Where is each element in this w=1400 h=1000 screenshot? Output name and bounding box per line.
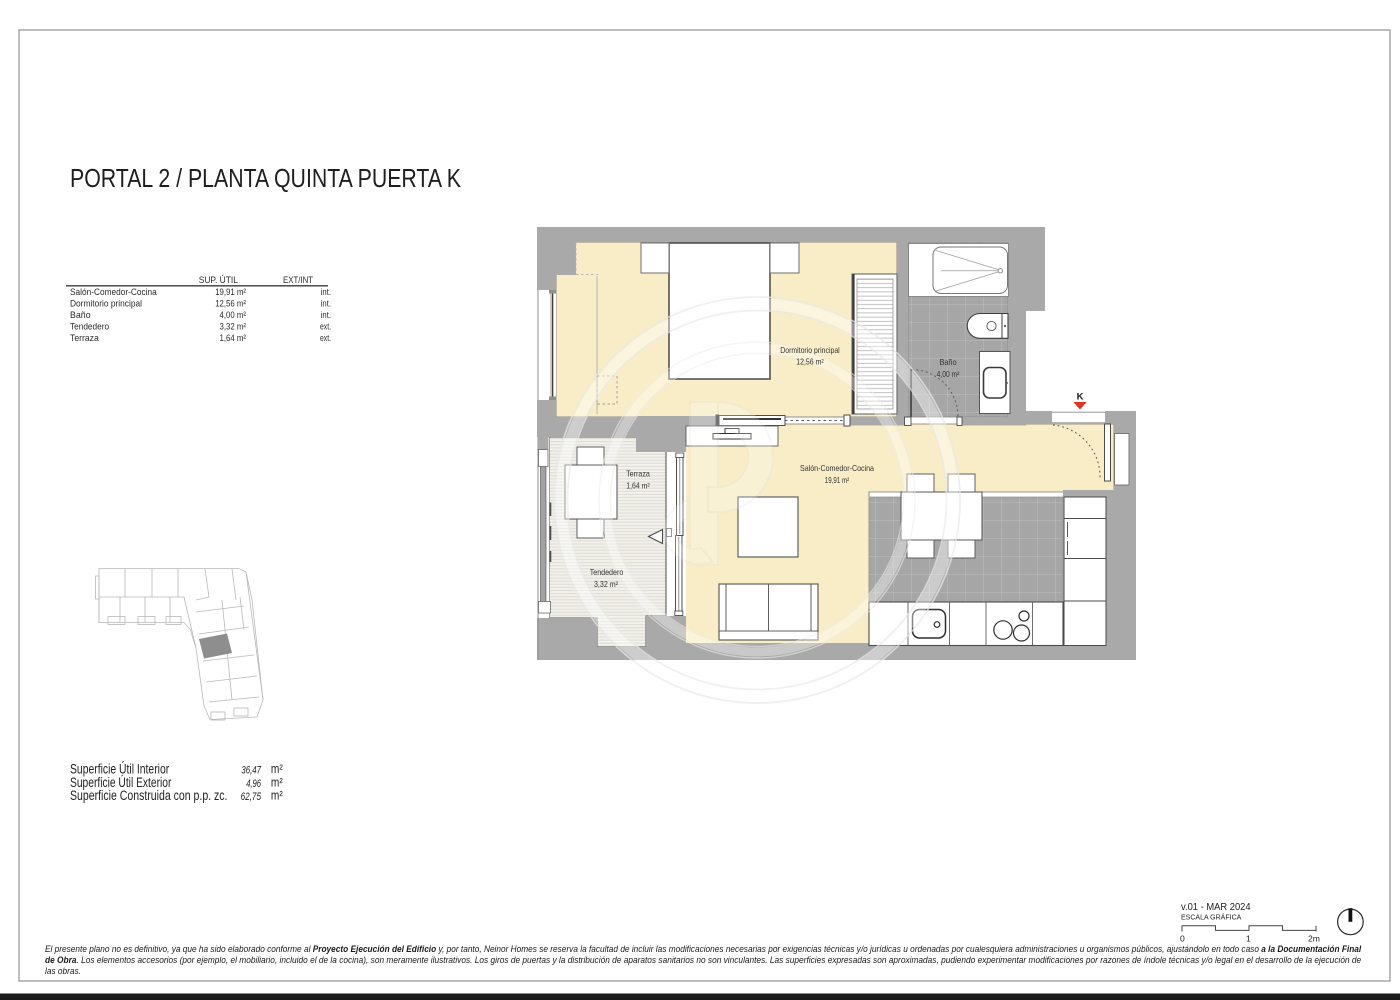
svg-text:Baño: Baño: [939, 358, 956, 367]
svg-text:12,56 m²: 12,56 m²: [215, 299, 246, 310]
svg-text:Baño: Baño: [70, 310, 91, 321]
svg-text:19,91 m²: 19,91 m²: [215, 287, 246, 298]
svg-text:ext.: ext.: [320, 322, 331, 333]
svg-text:m²: m²: [271, 775, 283, 789]
svg-text:62,75: 62,75: [241, 791, 262, 803]
svg-text:0: 0: [1180, 934, 1185, 944]
svg-text:1,64 m²: 1,64 m²: [626, 482, 650, 491]
svg-text:int.: int.: [321, 287, 331, 298]
svg-text:4,00 m²: 4,00 m²: [937, 370, 960, 379]
svg-text:Tendedero: Tendedero: [590, 568, 624, 577]
svg-text:Tendedero: Tendedero: [70, 322, 109, 333]
svg-text:36,47: 36,47: [241, 765, 261, 777]
svg-text:3,32 m²: 3,32 m²: [594, 580, 618, 589]
svg-text:m²: m²: [271, 789, 283, 803]
svg-text:ext.: ext.: [320, 333, 331, 344]
svg-text:m²: m²: [271, 762, 283, 776]
svg-text:K: K: [1077, 392, 1084, 403]
svg-text:4,96: 4,96: [246, 778, 261, 790]
svg-text:4,00 m²: 4,00 m²: [220, 310, 247, 321]
svg-text:3,32 m²: 3,32 m²: [220, 322, 247, 333]
svg-text:Terraza: Terraza: [70, 333, 99, 344]
svg-text:ESCALA GRÁFICA: ESCALA GRÁFICA: [1181, 912, 1242, 921]
svg-text:Dormitorio principal: Dormitorio principal: [780, 346, 840, 355]
svg-text:Terraza: Terraza: [626, 470, 650, 479]
svg-text:int.: int.: [321, 299, 331, 310]
svg-text:19,91 m²: 19,91 m²: [825, 476, 850, 485]
svg-text:12,56 m²: 12,56 m²: [796, 358, 824, 367]
svg-text:2m: 2m: [1308, 934, 1320, 944]
svg-text:Superficie Construida con p.p.: Superficie Construida con p.p. zc.: [70, 788, 228, 803]
svg-text:Salón-Comedor-Cocina: Salón-Comedor-Cocina: [800, 464, 874, 473]
svg-text:PORTAL 2 / PLANTA QUINTA PUERT: PORTAL 2 / PLANTA QUINTA PUERTA K: [70, 163, 462, 193]
svg-text:EXT/INT: EXT/INT: [283, 275, 313, 286]
svg-text:SUP. ÚTIL: SUP. ÚTIL: [199, 275, 238, 286]
svg-text:1: 1: [1246, 934, 1251, 944]
svg-text:Dormitorio principal: Dormitorio principal: [70, 299, 142, 310]
svg-text:Salón-Comedor-Cocina: Salón-Comedor-Cocina: [70, 287, 157, 298]
svg-text:1,64 m²: 1,64 m²: [220, 333, 247, 344]
svg-text:int.: int.: [321, 310, 331, 321]
